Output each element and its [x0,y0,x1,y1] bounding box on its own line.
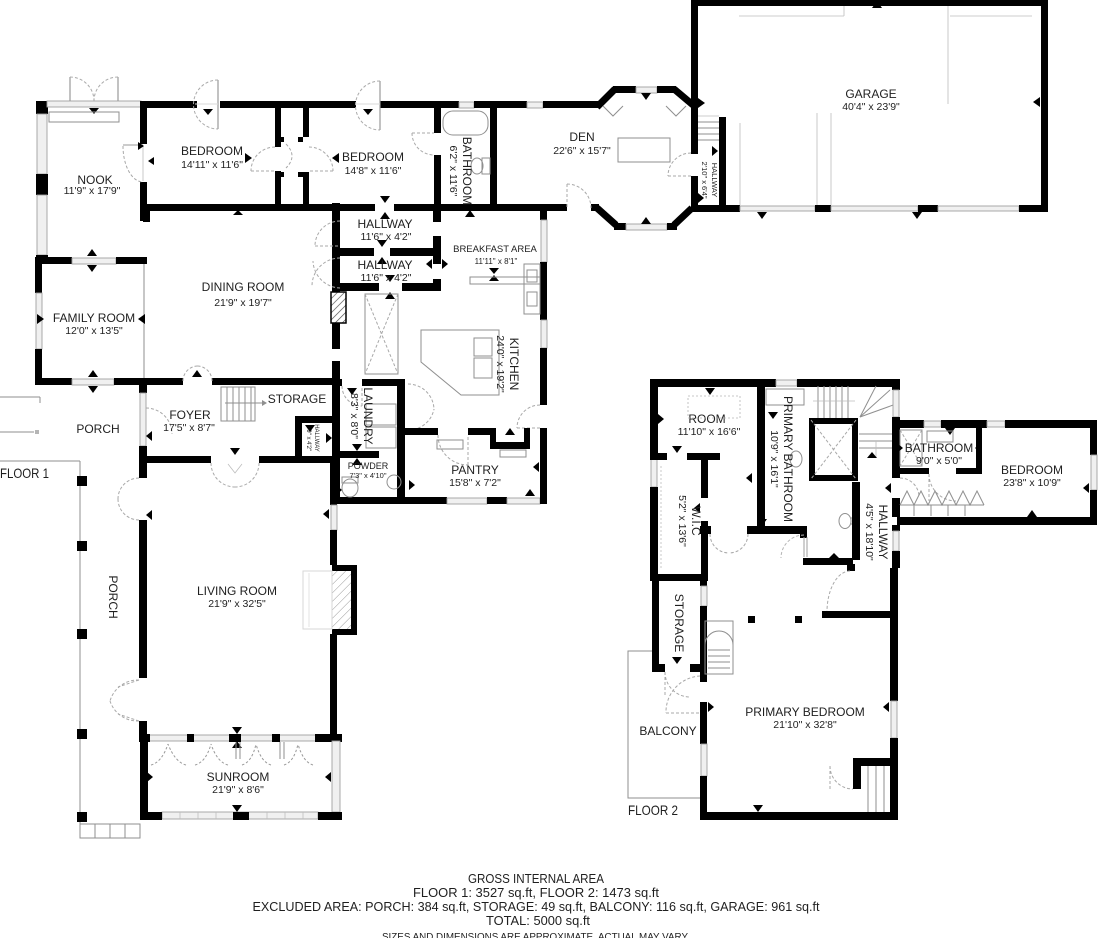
svg-text:12'0" x 13'5": 12'0" x 13'5" [65,325,123,337]
svg-text:FLOOR 1: FLOOR 1 [0,465,49,481]
svg-text:PORCH: PORCH [106,575,120,618]
svg-text:HALLWAY: HALLWAY [357,258,412,272]
svg-text:STORAGE: STORAGE [268,392,326,406]
svg-text:11'10" x 16'6": 11'10" x 16'6" [678,426,741,438]
svg-text:11'6" x 4'2": 11'6" x 4'2" [361,231,412,243]
svg-text:9'0" x 5'0": 9'0" x 5'0" [916,455,962,467]
svg-text:11'11" x 8'1": 11'11" x 8'1" [475,257,518,266]
svg-text:14'8" x 11'6": 14'8" x 11'6" [345,165,402,177]
svg-text:FLOOR 2: FLOOR 2 [628,802,678,818]
svg-text:24'0" x 19'2": 24'0" x 19'2" [494,335,506,393]
svg-text:11'6" x 4'2": 11'6" x 4'2" [361,272,412,284]
svg-text:POWDER: POWDER [348,461,389,471]
svg-text:SUNROOM: SUNROOM [207,770,270,784]
svg-text:LIVING ROOM: LIVING ROOM [197,584,277,598]
svg-text:DEN: DEN [569,130,594,144]
svg-text:BEDROOM: BEDROOM [181,144,243,158]
svg-text:21'9" x 32'5": 21'9" x 32'5" [208,598,266,610]
svg-text:4'5" x 18'10": 4'5" x 18'10" [863,503,875,561]
svg-text:HALLWAY: HALLWAY [710,163,719,197]
svg-text:14'11" x 11'6": 14'11" x 11'6" [181,159,243,171]
svg-text:GARAGE: GARAGE [845,87,896,101]
svg-text:SIZES AND DIMENSIONS ARE APPRO: SIZES AND DIMENSIONS ARE APPROXIMATE. AC… [382,931,688,938]
svg-text:KITCHEN: KITCHEN [507,338,521,391]
svg-text:HALLWAY: HALLWAY [357,217,412,231]
svg-text:BALCONY: BALCONY [639,724,696,738]
svg-text:BATHROOM: BATHROOM [905,441,973,455]
svg-text:BREAKFAST AREA: BREAKFAST AREA [453,244,537,255]
svg-text:LAUNDRY: LAUNDRY [361,387,375,444]
svg-text:10'9" x 16'1": 10'9" x 16'1" [768,430,780,488]
svg-text:21'9" x 19'7": 21'9" x 19'7" [214,297,272,309]
svg-text:7'3" x 4'10": 7'3" x 4'10" [350,471,387,480]
svg-text:21'9" x 8'6": 21'9" x 8'6" [212,784,264,796]
svg-text:FOYER: FOYER [169,408,211,422]
svg-text:11'9" x 17'9": 11'9" x 17'9" [64,185,121,197]
svg-text:BEDROOM: BEDROOM [1001,463,1063,477]
svg-text:8'3" x 8'0": 8'3" x 8'0" [348,393,360,439]
svg-text:2'10" x 6'4": 2'10" x 6'4" [700,162,709,199]
svg-text:PANTRY: PANTRY [451,463,499,477]
svg-text:5'2" x 13'6": 5'2" x 13'6" [676,495,688,547]
svg-text:23'8" x 10'9": 23'8" x 10'9" [1003,477,1061,489]
svg-text:BATHROOM: BATHROOM [460,137,474,205]
svg-text:FAMILY ROOM: FAMILY ROOM [53,311,135,325]
svg-text:TOTAL: 5000 sq.ft: TOTAL: 5000 sq.ft [486,914,591,928]
svg-text:17'5" x 8'7": 17'5" x 8'7" [163,422,215,434]
svg-text:HALLWAY: HALLWAY [313,424,319,452]
svg-text:HALLWAY: HALLWAY [876,504,890,559]
svg-text:21'10" x 32'8": 21'10" x 32'8" [773,719,837,731]
svg-text:PRIMARY BATHROOM: PRIMARY BATHROOM [781,396,795,522]
svg-text:15'8" x 7'2": 15'8" x 7'2" [449,477,501,489]
svg-text:PRIMARY BEDROOM: PRIMARY BEDROOM [745,705,865,719]
svg-text:FLOOR 1: 3527 sq.ft, FLOOR 2:: FLOOR 1: 3527 sq.ft, FLOOR 2: 1473 sq.ft [413,886,660,900]
svg-text:PORCH: PORCH [76,422,119,436]
svg-text:EXCLUDED AREA: PORCH: 384 sq.f: EXCLUDED AREA: PORCH: 384 sq.ft, STORAGE… [253,900,821,914]
svg-text:22'6" x 15'7": 22'6" x 15'7" [553,145,611,157]
svg-text:DINING ROOM: DINING ROOM [202,280,285,294]
svg-text:40'4" x 23'9": 40'4" x 23'9" [842,101,900,113]
svg-text:6'2" x 11'6": 6'2" x 11'6" [447,146,459,197]
svg-text:GROSS INTERNAL AREA: GROSS INTERNAL AREA [468,872,605,886]
svg-text:BEDROOM: BEDROOM [342,150,404,164]
svg-text:STORAGE: STORAGE [672,594,686,652]
svg-text:ROOM: ROOM [688,412,725,426]
